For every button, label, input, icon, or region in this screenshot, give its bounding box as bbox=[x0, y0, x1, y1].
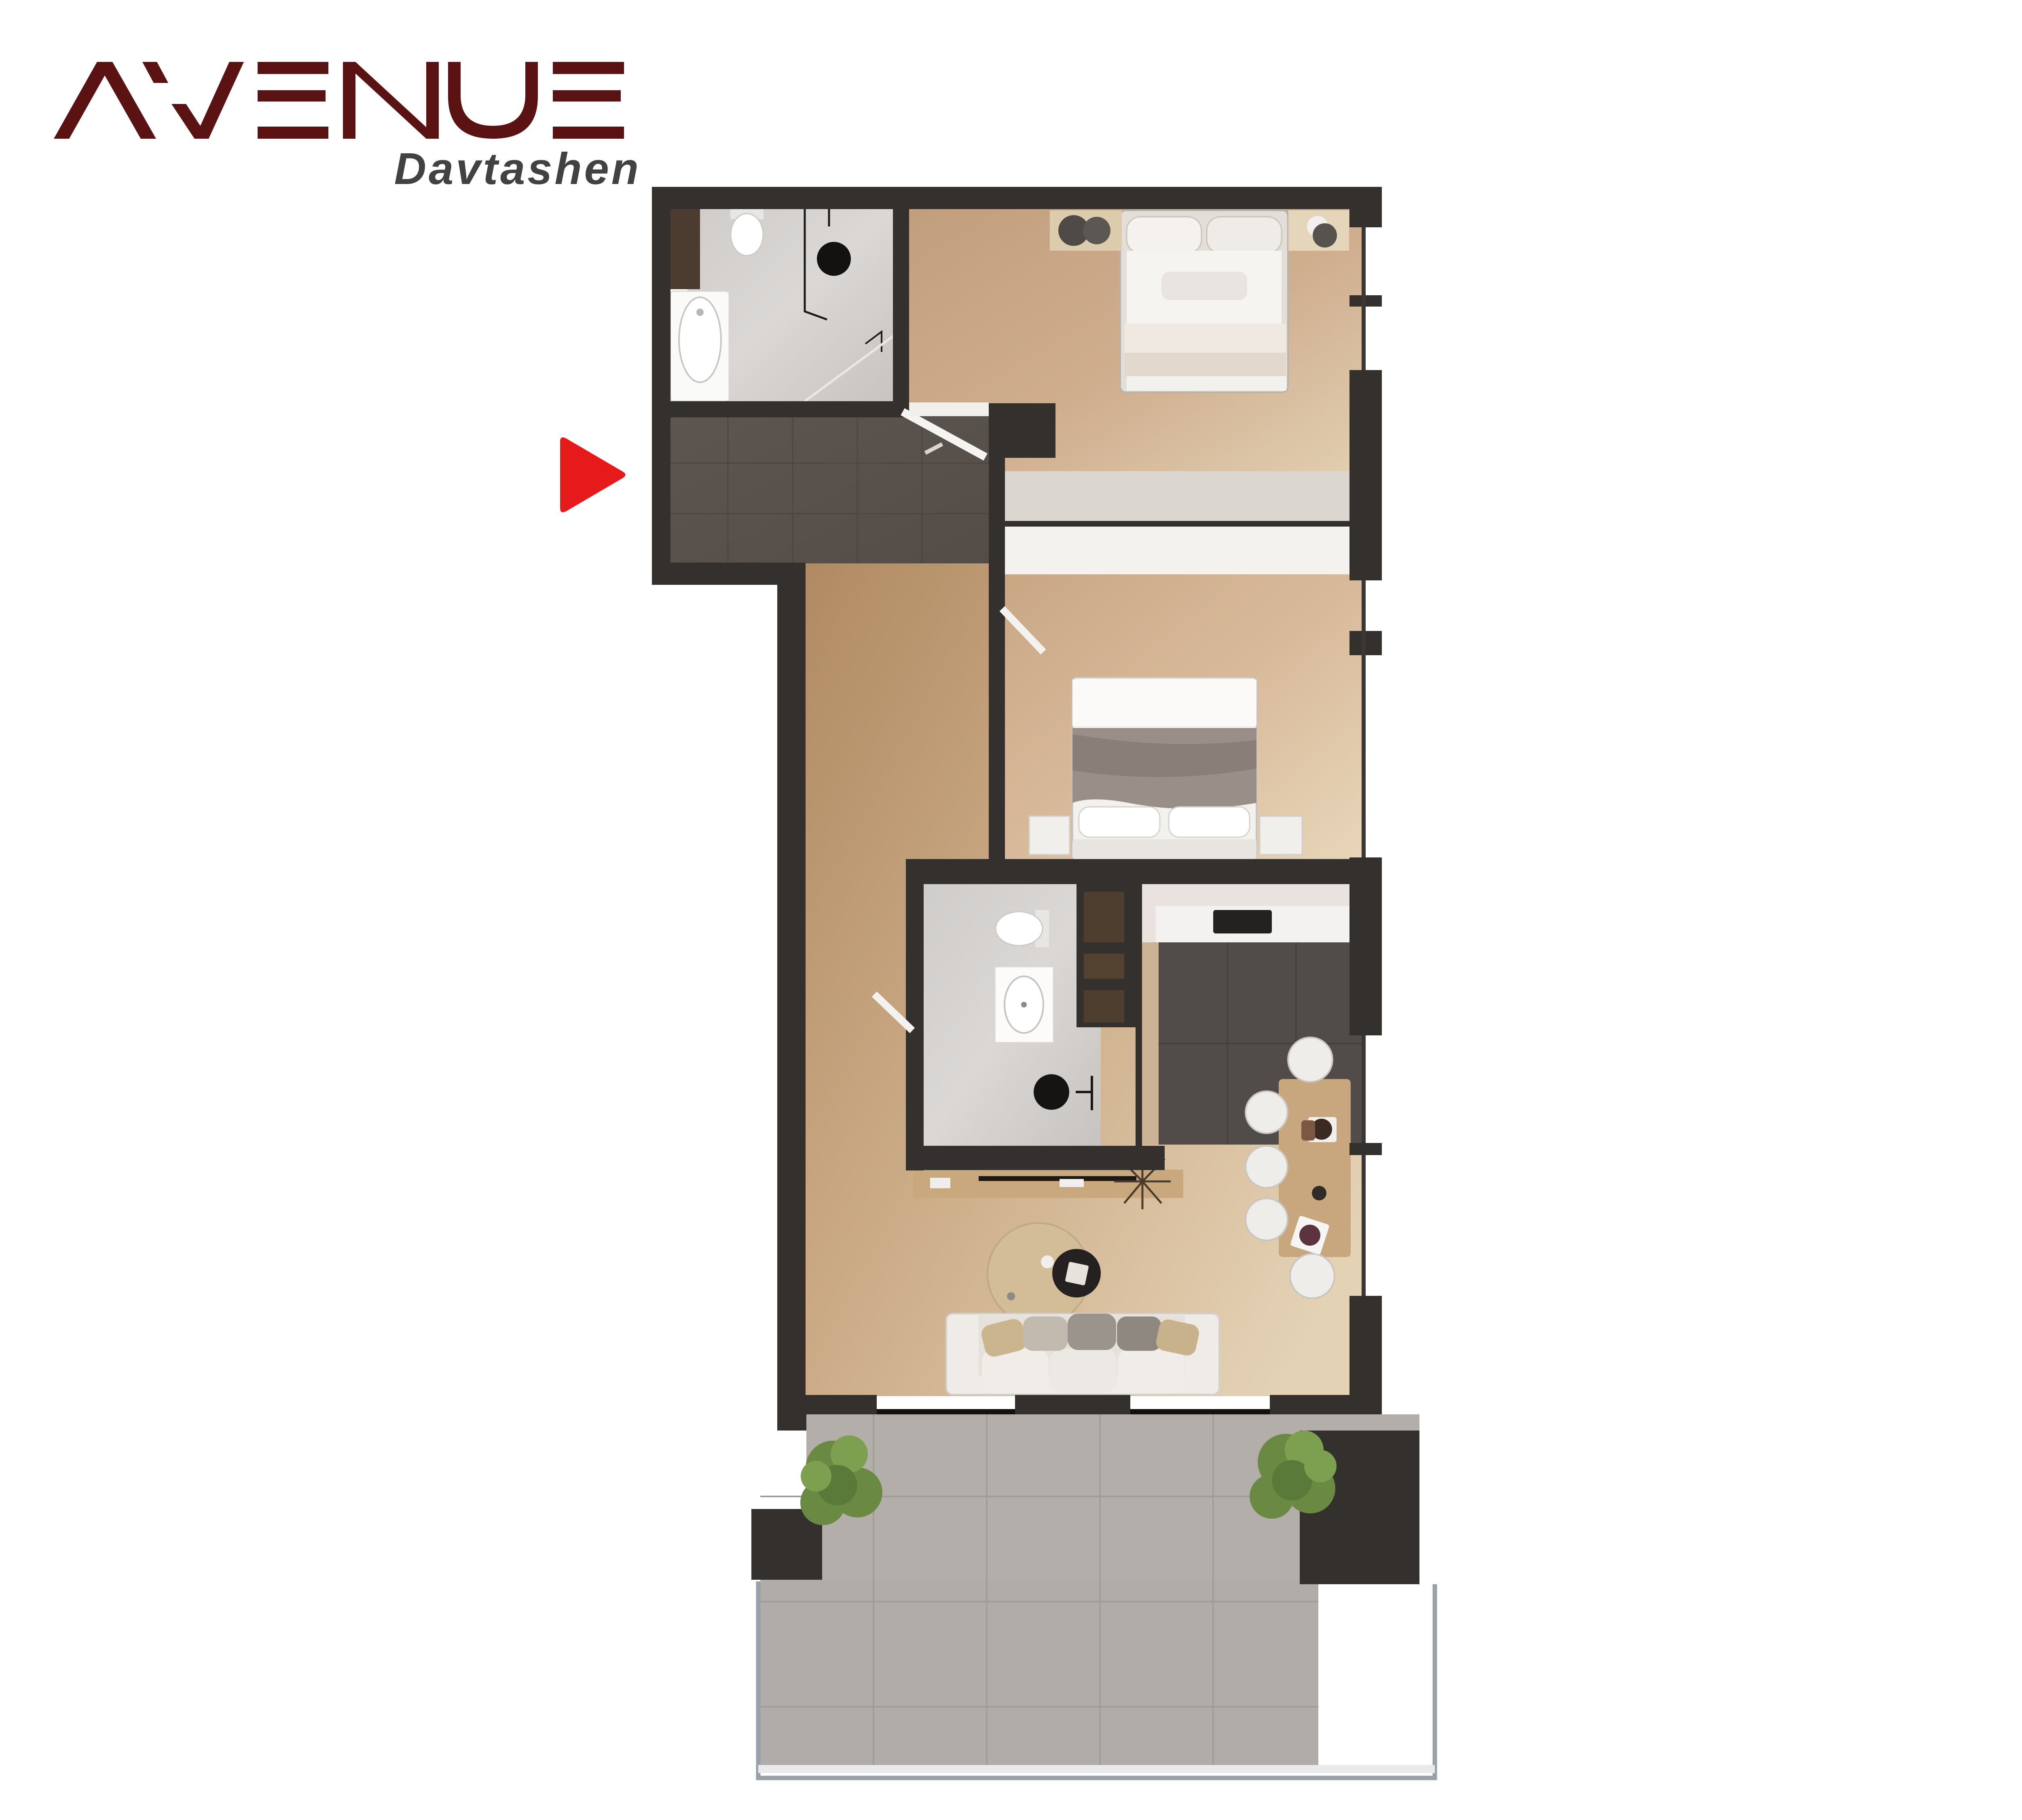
svg-text:Davtashen: Davtashen bbox=[394, 144, 641, 194]
